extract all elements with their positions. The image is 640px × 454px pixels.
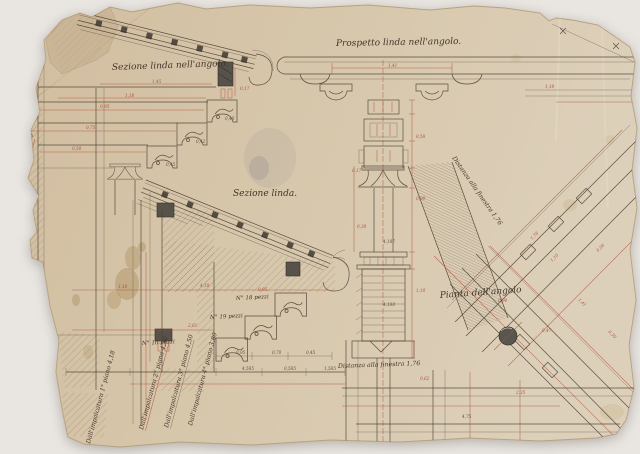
dimension-label: 0,62 <box>420 376 430 381</box>
dimension-label: 4,188 <box>382 302 395 307</box>
dimension-label: 0,95 <box>100 104 110 109</box>
dimension-label: 0,585 <box>284 366 296 371</box>
dimension-label: 0,95 <box>258 287 268 292</box>
dimension-label: 0,58 <box>72 146 82 151</box>
dimension-label: 1,585 <box>324 366 336 371</box>
dimension-label: 0,40 <box>225 116 235 121</box>
dimension-label: 4,187 <box>382 239 395 244</box>
dimension-label: 0,45 <box>306 350 316 355</box>
drawing-sheet-photo: Sezione linda nell'angolo. Prospetto lin… <box>0 0 640 454</box>
dimension-label: 0,47 <box>542 328 552 333</box>
dimension-label: 0,42 <box>196 139 206 144</box>
dimension-label: 4,75 <box>461 414 472 419</box>
dimension-label: 1,18 <box>125 93 135 98</box>
dimension-label: 2,35 <box>515 390 526 395</box>
dimension-label: 0,17 <box>352 168 362 173</box>
title-section: Sezione linda. <box>233 189 297 199</box>
dimension-label: 0,58 <box>416 134 426 139</box>
dimension-label: 0,75 <box>86 125 96 130</box>
dimension-label: 1,10 <box>118 284 128 289</box>
wall-plate-block <box>157 203 174 217</box>
dimension-label: 1,45 <box>152 79 162 84</box>
dimension-label: 0,90 <box>498 298 508 303</box>
dimension-label: 1,10 <box>416 288 426 293</box>
dimension-label: 0,70 <box>272 350 282 355</box>
dimension-label: 4,18 <box>199 283 210 288</box>
wall-plate-block <box>286 262 300 276</box>
dimension-label: 4,585 <box>241 366 254 371</box>
dimension-label: 0,95 <box>236 350 246 355</box>
dimension-label: 1,10 <box>545 84 555 89</box>
dimension-label: 0,90 <box>416 196 426 201</box>
dimension-label: 0,45 <box>166 162 176 167</box>
dimension-label: 1,41 <box>388 63 397 68</box>
dimension-label: 0,17 <box>240 86 250 91</box>
architectural-drawing-svg: Sezione linda nell'angolo. Prospetto lin… <box>0 0 640 454</box>
dimension-label: 0,30 <box>357 224 367 229</box>
dimension-label: 2,61 <box>187 323 197 328</box>
